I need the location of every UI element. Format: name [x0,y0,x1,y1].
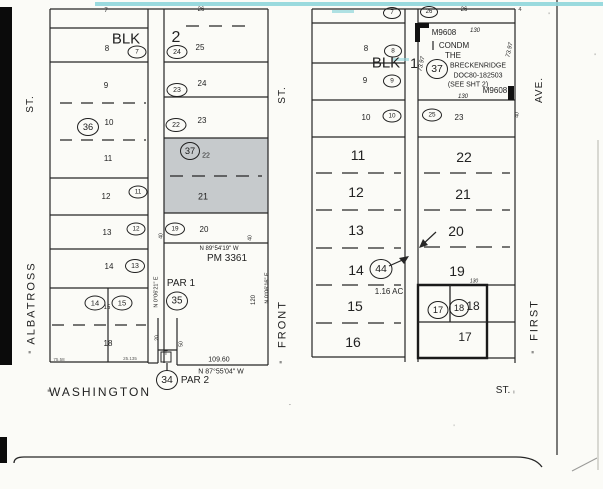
condo-text-3: BRECKENRIDGE [450,63,506,70]
condo-text-2: THE [445,52,461,60]
blk1-lot-16: 16 [345,335,361,349]
albatross-street-label: ALBATROSS [27,261,38,344]
parcel-circle-14: 14 [85,296,106,311]
blk2-lot-8: 8 [105,45,109,53]
blk2-lot-23: 23 [198,117,207,125]
parcel-circle-15: 15 [112,296,133,311]
first-street-label: FIRST [530,299,541,341]
blk2-lot-22: 22 [202,153,210,160]
condo-text-1: CONDM [439,42,469,50]
blk2-lot-13: 13 [103,229,112,237]
parcel-circle-18: 18 [449,299,469,317]
blk1-lot-21: 21 [455,187,471,201]
parcel-2-label: PAR 2 [181,376,209,386]
dim-10960: 109.60 [208,357,229,364]
blk2-lot-26: 26 [198,7,205,13]
parcel-circle-10: 10 [383,110,402,123]
dim-7558: 75.58 [53,358,64,363]
blk1-lot-22: 22 [456,150,472,164]
parcel-circle-12: 12 [127,223,146,236]
blk1-lot-26: 26 [461,7,468,13]
parcel-circle-7-blk1: 7 [383,7,401,19]
stem-t-mark: T [164,351,168,357]
map-geometry [0,0,603,489]
blk1-lot-9: 9 [363,77,367,85]
parcel-circle-8: 8 [384,45,402,58]
parcel-circle-44: 44 [370,259,393,279]
first-ave-suffix-label: AVE. [535,77,545,103]
condo-dim-130-top: 130 [470,28,480,34]
front-section-tick: ≡ [280,361,285,364]
blk1-label: BLK [372,56,400,71]
blk2-lot-25: 25 [196,44,205,52]
dim-40-west: 40 [160,233,165,239]
bearing-north-line: N 89°54'19" W [199,246,238,252]
parcel-1-label: PAR 1 [167,279,195,289]
parcel-circle-17: 17 [428,301,449,319]
parcel-circle-11: 11 [129,186,148,199]
blk1-lot-17: 17 [458,331,471,343]
blk2-lot-21: 21 [198,193,208,202]
parcel-circle-35: 35 [166,292,188,311]
condo-map-number-bottom: M9608 [483,87,507,95]
dim-20-stem: 20 [156,335,161,341]
acreage-label: 1.16 AC [375,288,403,296]
washington-street-label: WASHINGTON [49,386,151,398]
condo-dim-130-bottom: 130 [458,94,468,100]
dim-50-stem: 50 [180,341,185,347]
blk2-lot-7: 7 [104,8,107,14]
parcel-circle-37-blk2: 37 [180,142,200,160]
parcel-circle-37-condo: 37 [426,59,448,79]
blk2-lot-20: 20 [200,226,209,234]
blk1-lot-8: 8 [364,45,368,53]
blk2-number: 2 [172,30,181,46]
blk1-lot-10: 10 [362,114,371,122]
parcel-circle-22: 22 [166,118,187,132]
dim-130-lot18: 130 [470,280,478,285]
survey-arrows [389,232,436,266]
blk1-lot-20: 20 [448,224,464,238]
condo-map-number-top: M9608 [432,29,456,37]
stray-tick-1: ' [548,13,549,20]
dim-40-east: 40 [249,235,254,241]
parcel-circle-36: 36 [77,118,99,136]
blk1-number: 1 [410,56,418,70]
left-edge-bar [0,7,12,365]
parcel-circle-24: 24 [167,45,188,59]
albatross-section-tick: ≡ [29,351,34,354]
blk2-lot-24: 24 [198,80,207,88]
blk2-lot-18: 18 [104,340,113,348]
blk2-lot-12: 12 [102,193,111,201]
left-edge-bar-fragment [0,437,7,463]
blk1-lot-13: 13 [348,223,364,237]
dim-120: 120 [251,295,257,305]
stray-tick-2: ' [594,54,595,61]
blk1-lot-23: 23 [455,114,464,122]
parcel-circle-25: 25 [422,109,442,122]
parcel-circle-34: 34 [156,370,178,390]
washington-st-tick: ı [513,391,514,396]
blk1-lot-11: 11 [351,148,366,162]
albatross-st-suffix-label: ST. [26,95,36,112]
washington-st-suffix-label: ST. [496,386,510,396]
blk2-lot-11: 11 [104,155,112,163]
blk2-label: BLK [112,32,140,47]
cyan-scan-line [95,2,603,6]
front-st-suffix-label: ST. [278,86,288,103]
bearing-west-line: N 0°06'21" E [154,276,160,307]
washington-section-tick: ≡ [48,390,51,395]
front-street-label: FRONT [278,300,289,348]
blk1-lot-19: 19 [449,264,465,278]
parcel-circle-9: 9 [383,75,401,88]
parcel-circle-26: 26 [420,6,438,18]
parcel-map-number: PM 3361 [207,254,247,264]
parcel-circle-19: 19 [165,223,185,236]
parcel-circle-7-blk2: 7 [128,46,147,59]
cyan-dash-1 [332,10,354,13]
parcel-circle-23: 23 [167,83,188,97]
blk2-lot-14: 14 [105,263,114,271]
lot18-heavy-box [418,285,487,358]
dim-25135: 25.135 [123,357,137,362]
blk1-lot-15: 15 [347,299,363,313]
bearing-south-line: N 87°55'04" W [198,369,244,376]
blk1-lot-14: 14 [348,263,364,277]
dim-40-firstave: 40 [516,112,521,118]
stray-mark-4: 4 [518,7,521,13]
blk2-lot-9: 9 [104,82,108,90]
blk1-lot-12: 12 [348,185,364,199]
stray-tick-3: ' [453,425,454,432]
blk2-lot-10: 10 [105,119,114,127]
first-section-tick: ≡ [532,351,537,354]
bearing-east-line: N 0°06'16" E [265,272,271,303]
condo-text-4: DOC80-182503 [453,73,502,80]
parcel-circle-13: 13 [125,259,145,273]
plat-map: ST.ALBATROSS≡ST.FRONT≡AVE.FIRST≡WASHINGT… [0,0,603,489]
